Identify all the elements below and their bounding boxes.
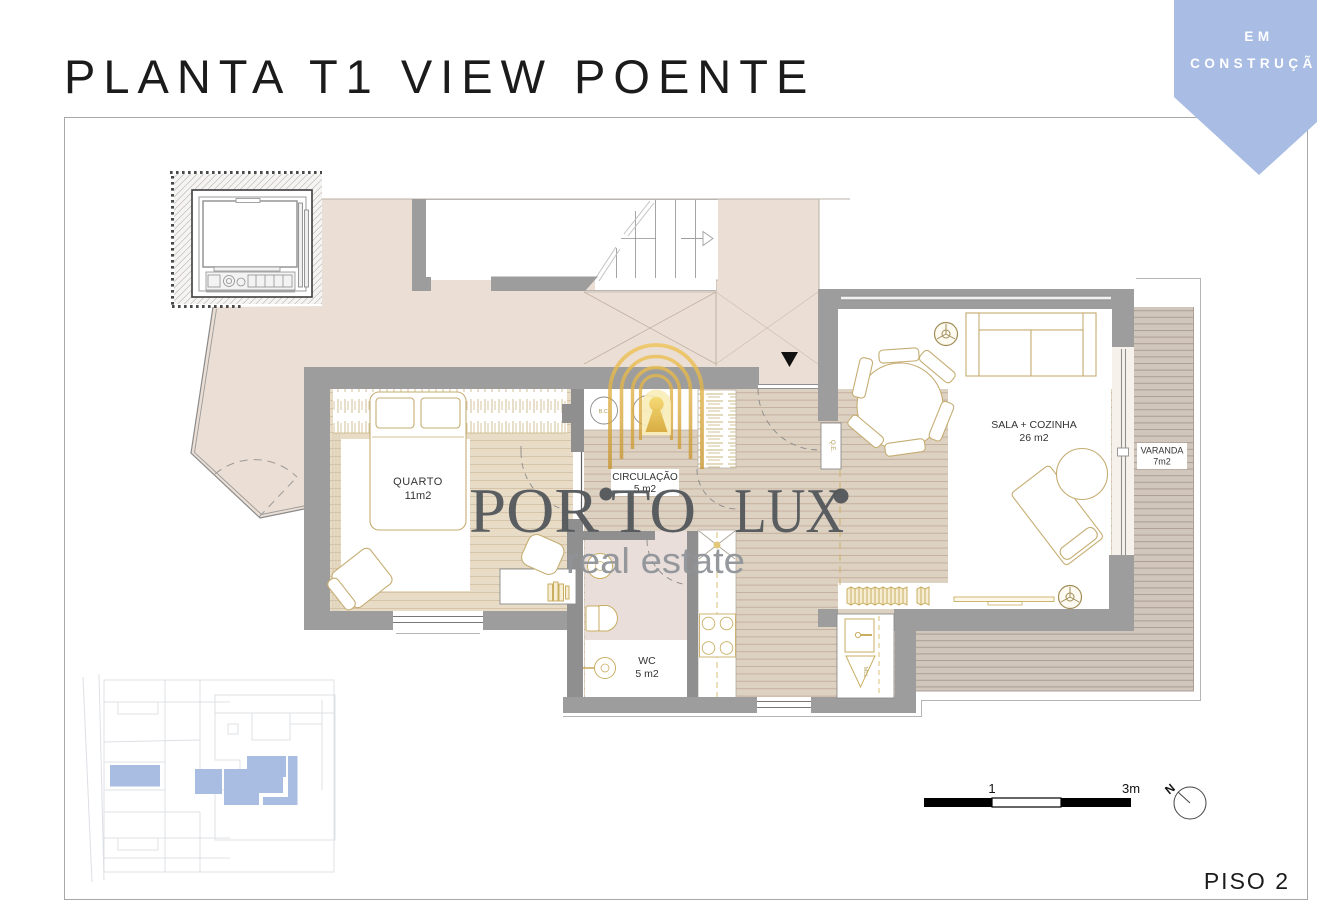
svg-text:7m2: 7m2 bbox=[1153, 457, 1171, 467]
svg-text:VARANDA: VARANDA bbox=[1141, 446, 1184, 456]
svg-text:SALA + COZINHA: SALA + COZINHA bbox=[991, 419, 1077, 431]
svg-text:26 m2: 26 m2 bbox=[1019, 432, 1048, 444]
svg-text:PISO 2: PISO 2 bbox=[1204, 868, 1290, 894]
svg-text:PLANTA T1 VIEW POENTE: PLANTA T1 VIEW POENTE bbox=[64, 50, 815, 103]
svg-text:Q.E.: Q.E. bbox=[829, 440, 835, 452]
svg-text:TO: TO bbox=[611, 476, 696, 546]
svg-text:real estate: real estate bbox=[566, 540, 745, 581]
svg-text:3m: 3m bbox=[1122, 781, 1140, 796]
svg-text:5 m2: 5 m2 bbox=[635, 668, 659, 680]
svg-text:MLL: MLL bbox=[862, 667, 868, 678]
svg-text:11m2: 11m2 bbox=[405, 490, 432, 502]
svg-text:QUARTO: QUARTO bbox=[393, 476, 443, 488]
svg-text:POR: POR bbox=[469, 476, 599, 546]
svg-text:WC: WC bbox=[638, 655, 656, 667]
svg-text:EM: EM bbox=[1244, 29, 1273, 44]
svg-text:1: 1 bbox=[988, 781, 995, 796]
svg-text:CONSTRUÇÃO: CONSTRUÇÃO bbox=[1190, 56, 1317, 71]
svg-text:LUX: LUX bbox=[734, 476, 844, 546]
